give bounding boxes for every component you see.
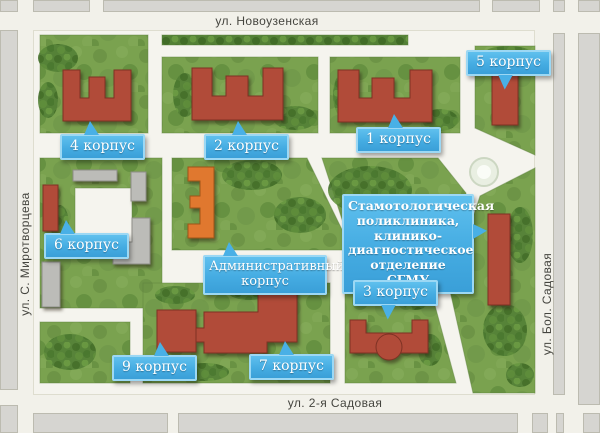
callout-label: Административный корпус	[209, 259, 344, 289]
callout-label: 5 корпус	[476, 54, 541, 70]
callout-label: 1 корпус	[366, 131, 431, 147]
building-4	[63, 70, 131, 121]
callout-korpus-9: 9 корпус	[112, 355, 197, 381]
street-label-mirotvortseva: ул. С. Миротворцева	[18, 174, 32, 334]
callout-korpus-7: 7 корпус	[249, 354, 334, 380]
building-9	[157, 310, 196, 352]
callout-label: 2 корпус	[214, 138, 279, 154]
building-2	[192, 68, 283, 120]
callout-korpus-5: 5 корпус	[466, 50, 551, 76]
callout-korpus-3: 3 корпус	[353, 280, 438, 306]
building-admin	[188, 167, 214, 238]
callout-stomatology: Стамотологическая поликлиника, клинико-д…	[342, 194, 474, 294]
callout-label: 7 корпус	[259, 358, 324, 374]
street-label-novouzenskaya: ул. Новоузенская	[187, 14, 347, 28]
hedge-strip	[162, 35, 408, 45]
callout-admin-building: Административный корпус	[203, 255, 327, 295]
callout-label: 3 корпус	[363, 284, 428, 300]
building-gray-small	[131, 172, 146, 201]
building-1	[338, 70, 432, 122]
callout-korpus-1: 1 корпус	[356, 127, 441, 153]
building-gray-south	[42, 262, 60, 307]
building-6	[43, 185, 58, 231]
callout-label: Стамотологическая поликлиника, клинико-д…	[348, 198, 494, 287]
street-label-bol-sadovaya: ул. Бол. Садовая	[540, 224, 554, 384]
campus-map: ул. Новоузенская ул. 2-я Садовая ул. С. …	[0, 0, 600, 433]
callout-korpus-6: 6 корпус	[44, 233, 129, 259]
building-stomatology	[488, 214, 510, 305]
callout-label: 6 корпус	[54, 237, 119, 253]
fountain	[470, 158, 498, 186]
callout-korpus-2: 2 корпус	[204, 134, 289, 160]
building-3-rotunda	[376, 334, 402, 360]
callout-label: 9 корпус	[122, 359, 187, 375]
building-gray-bar	[73, 170, 117, 181]
callout-label: 4 корпус	[70, 138, 135, 154]
street-label-2-sadovaya: ул. 2-я Садовая	[255, 396, 415, 410]
callout-korpus-4: 4 корпус	[60, 134, 145, 160]
